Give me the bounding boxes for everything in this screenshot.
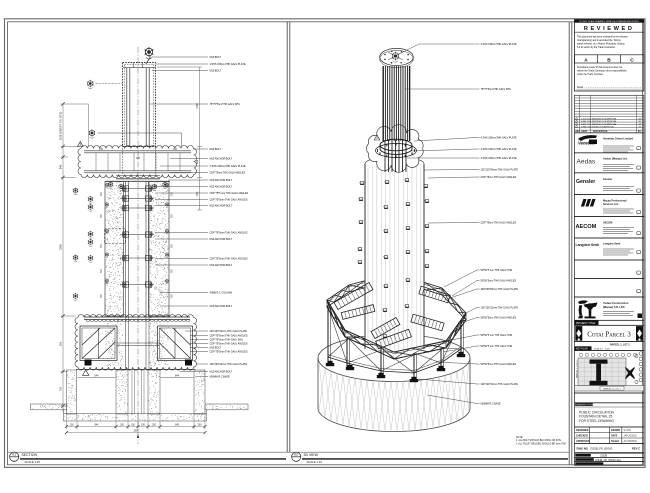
svg-text:Date :: Date : (577, 85, 585, 89)
svg-text:M10 ANCHOR BOLT: M10 ANCHOR BOLT (210, 204, 233, 207)
svg-text:4 SHS 150mmTHK GALV PLATE: 4 SHS 150mmTHK GALV PLATE (210, 63, 246, 66)
svg-text:4 SHS 150mmTHK GALV PLATE: 4 SHS 150mmTHK GALV PLATE (210, 165, 246, 168)
svg-text:PARCEL 1, LOT 1: PARCEL 1, LOT 1 (575, 360, 578, 378)
svg-text:Gensler: Gensler (603, 178, 612, 181)
svg-text:600MM R.C BASE: 600MM R.C BASE (481, 402, 502, 405)
svg-text:4 SHS 150mmTHK GALV PLATE: 4 SHS 150mmTHK GALV PLATE (481, 136, 517, 139)
svg-text:2. ALL FILLET WELDED SHOULD BE: 2. ALL FILLET WELDED SHOULD BE 3mm THK. (516, 442, 567, 445)
svg-text:DESIGNED: DESIGNED (576, 429, 589, 432)
svg-text:844: 844 (175, 374, 180, 377)
svg-text:3153B_PD_B5000: 3153B_PD_B5000 (590, 447, 613, 451)
svg-text:REISSUED FOR APPROVAL: REISSUED FOR APPROVAL (592, 118, 617, 121)
svg-text:CDF*75*5mm THK GALV ANGLES: CDF*75*5mm THK GALV ANGLES (210, 257, 248, 260)
svg-text:1196 (VERIFY ON SITE): 1196 (VERIFY ON SITE) (59, 112, 63, 141)
svg-text:REVIEWED: REVIEWED (584, 26, 635, 32)
svg-text:CDF*75*5mm THK GALV ANGLES: CDF*75*5mm THK GALV ANGLES (210, 198, 248, 201)
svg-text:50*50*5mm THK GALV ANGLES: 50*50*5mm THK GALV ANGLES (481, 316, 517, 319)
svg-text:PARCEL 1, LOT 2: PARCEL 1, LOT 2 (610, 344, 630, 347)
svg-text:9 MAR 2015: 9 MAR 2015 (581, 126, 592, 129)
svg-text:5.4 for action by the Trade Co: 5.4 for action by the Trade Contractor. (577, 46, 616, 49)
svg-text:600MM R.C BASE: 600MM R.C BASE (210, 375, 231, 378)
svg-text:846: 846 (59, 164, 63, 169)
svg-text:Aedas (Macau) Ltd.: Aedas (Macau) Ltd. (603, 156, 628, 160)
svg-text:CDF*75*5mm THK GALV ANGLES: CDF*75*5mm THK GALV ANGLES (210, 350, 248, 353)
svg-text:8 MAY 2015: 8 MAY 2015 (581, 120, 591, 123)
svg-text:SCALE: SCALE (611, 440, 620, 443)
svg-text:4 B88 R.C COLUMN: 4 B88 R.C COLUMN (210, 291, 233, 294)
svg-text:120*120*50mm THK GALV PLATE: 120*120*50mm THK GALV PLATE (481, 168, 519, 171)
svg-text:(Macau) CO. LTD.: (Macau) CO. LTD. (603, 305, 625, 309)
svg-text:CDF*75*5mm THK GALV SHS: CDF*75*5mm THK GALV SHS (210, 338, 244, 341)
svg-text:3D VIEW: 3D VIEW (304, 453, 319, 457)
svg-text:4 SHS 150mmTHK GALV PLATE: 4 SHS 150mmTHK GALV PLATE (481, 148, 517, 151)
svg-text:APPROVED: APPROVED (576, 440, 590, 443)
svg-text:750: 750 (59, 386, 63, 391)
svg-text:M10 ANCHOR BOLT: M10 ANCHOR BOLT (210, 370, 233, 373)
svg-text:REV C: REV C (632, 447, 640, 451)
svg-text:4 SHS 150mmTHK GALV PLATE: 4 SHS 150mmTHK GALV PLATE (481, 43, 517, 46)
svg-text:CDF*75*5mm THK GALV ANGLES: CDF*75*5mm THK GALV ANGLES (210, 231, 248, 234)
svg-text:CDF*75mm THK GALV ANGLES: CDF*75mm THK GALV ANGLES (210, 171, 246, 174)
svg-text:REISSUED FOR APPROVAL: REISSUED FOR APPROVAL (592, 120, 617, 123)
svg-text:M10 ANCHOR BOLT: M10 ANCHOR BOLT (210, 185, 233, 188)
svg-text:14FUG2015: 14FUG2015 (624, 434, 638, 437)
svg-text:100*100*10mm THK GALV PLATE: 100*100*10mm THK GALV PLATE (481, 383, 519, 386)
svg-text:CDF*75*5mm THK GALV ANGLES: CDF*75*5mm THK GALV ANGLES (210, 342, 248, 345)
svg-text:DRAWING TITLE:: DRAWING TITLE: (576, 404, 594, 407)
svg-text:N50: N50 (195, 191, 199, 196)
svg-text:Cotai Parcel 3: Cotai Parcel 3 (587, 331, 631, 339)
svg-text:3: 3 (79, 143, 81, 147)
svg-text:Langdon·Seah: Langdon·Seah (576, 243, 600, 247)
svg-text:460*200*50mm THK GALV PLATE: 460*200*50mm THK GALV PLATE (481, 288, 519, 291)
svg-text:under the Trade Contract.: under the Trade Contract. (577, 73, 604, 76)
svg-text:100*100*10mm THK GALV PLATE: 100*100*10mm THK GALV PLATE (210, 330, 248, 333)
svg-text:CHECKED: CHECKED (576, 434, 588, 437)
svg-text:Langdon Seah: Langdon Seah (603, 243, 621, 246)
svg-text:AECOM: AECOM (603, 222, 612, 225)
svg-text:M10 ANCHOR BOLT: M10 ANCHOR BOLT (210, 179, 233, 182)
svg-text:S.LHO: S.LHO (624, 429, 631, 432)
svg-text:75*75*5mmTHK GALV SHS: 75*75*5mmTHK GALV SHS (481, 88, 512, 91)
svg-text:75*75*5mmTHK GALV SHS: 75*75*5mmTHK GALV SHS (210, 103, 241, 106)
svg-text:AS SHOWN: AS SHOWN (624, 440, 637, 443)
svg-text:50*50*5mm THK GALV ANGLES: 50*50*5mm THK GALV ANGLES (481, 363, 517, 366)
svg-text:50*50*5mm THK GALV ANGLES: 50*50*5mm THK GALV ANGLES (481, 279, 517, 282)
svg-text:DWG NO: DWG NO (577, 447, 588, 451)
svg-text:PROJECT TITLE:: PROJECT TITLE: (576, 322, 596, 325)
svg-text:M10 BOLT: M10 BOLT (210, 69, 222, 72)
svg-text:50*50*5 mm THK GALV SHS: 50*50*5 mm THK GALV SHS (481, 345, 513, 348)
svg-text:2 JUN 2015: 2 JUN 2015 (581, 119, 591, 121)
svg-text:This document has been reviewe: This document has been reviewed by the r… (577, 36, 628, 39)
svg-text:status referred to in Project: status referred to in Project Procedure … (577, 43, 625, 46)
svg-text:1196: 1196 (195, 103, 199, 109)
svg-text:M10 BOLT: M10 BOLT (210, 346, 222, 349)
svg-text:2590: 2590 (133, 430, 139, 432)
svg-text:Consultant review of this docu: Consultant review of this document does … (577, 66, 623, 69)
svg-text:Consultants(s) and is accorded: Consultants(s) and is accorded the Wrong (577, 39, 621, 42)
svg-text:6 APR 2015: 6 APR 2015 (581, 123, 591, 126)
svg-text:02: 02 (294, 453, 298, 457)
svg-text:846: 846 (195, 159, 199, 164)
svg-text:A: A (584, 57, 588, 63)
svg-text:500: 500 (59, 341, 63, 346)
svg-text:100*100*10mm THK GALV PLATE: 100*100*10mm THK GALV PLATE (481, 306, 519, 309)
svg-text:SCALE 1 : 7500: SCALE 1 : 7500 (594, 348, 610, 351)
svg-text:50*50*5 mm THK GALV SHS: 50*50*5 mm THK GALV SHS (481, 334, 513, 337)
svg-text:DO NOT SCALE DRAWING. VERIFY A: DO NOT SCALE DRAWING. VERIFY ALL DIMENSI… (580, 20, 640, 23)
svg-text:M10 BOLT: M10 BOLT (210, 56, 222, 59)
svg-text:relieve the Trade Contractor o: relieve the Trade Contractor of its resp… (577, 69, 628, 72)
svg-text:Gensler: Gensler (576, 179, 595, 185)
svg-text:NOTE:: NOTE: (516, 437, 523, 439)
svg-text:M10 ANCHOR BOLT: M10 ANCHOR BOLT (210, 238, 233, 241)
svg-text:REISSUED FOR APPROVAL: REISSUED FOR APPROVAL (592, 123, 617, 126)
svg-text:PARCEL 3, LOT 1: PARCEL 3, LOT 1 (603, 387, 621, 390)
svg-text:CDF*75mm THK GALV ANGLES: CDF*75mm THK GALV ANGLES (481, 176, 517, 179)
svg-text:C: C (630, 57, 634, 63)
svg-text:M10 ANCHOR BOLT: M10 ANCHOR BOLT (210, 305, 233, 308)
svg-text:FOR STEEL DRAWING: FOR STEEL DRAWING (579, 419, 614, 423)
svg-text:100*100*10mm THK GALV PLATE: 100*100*10mm THK GALV PLATE (210, 363, 248, 366)
svg-text:Aedas: Aedas (577, 159, 596, 166)
svg-text:SECTION: SECTION (22, 453, 38, 457)
svg-text:2345: 2345 (59, 244, 63, 250)
svg-text:M10 BOLT: M10 BOLT (210, 148, 222, 151)
svg-text:M10 ANCHOR BOLT: M10 ANCHOR BOLT (210, 264, 233, 267)
svg-text:SCALE 1:10: SCALE 1:10 (307, 460, 323, 464)
svg-text:844: 844 (95, 374, 100, 377)
svg-text:CDF*75mm THK GALV ANGLES: CDF*75mm THK GALV ANGLES (481, 221, 517, 224)
svg-text:Yudea Construction: Yudea Construction (603, 301, 629, 305)
svg-text:CDF*75*5 mm THK GALV ANGLES: CDF*75*5 mm THK GALV ANGLES (210, 192, 249, 195)
svg-text:4 SHS 150mmTHK GALV PLATE: 4 SHS 150mmTHK GALV PLATE (481, 157, 517, 160)
svg-text:01: 01 (12, 453, 16, 457)
svg-text:ISSUED FOR APPROVAL: ISSUED FOR APPROVAL (592, 126, 614, 129)
svg-text:AECOM: AECOM (576, 224, 597, 230)
svg-text:CDF*75*5mm THK GALV ANGLES: CDF*75*5mm THK GALV ANGLES (210, 334, 248, 337)
svg-text:B: B (607, 57, 611, 63)
svg-text:DATE: DATE (611, 434, 618, 437)
svg-text:M10 ANCHOR BOLT: M10 ANCHOR BOLT (210, 157, 233, 160)
svg-text:DRAWN: DRAWN (611, 429, 620, 432)
svg-text:50*50*5 mm THK GALV SHS: 50*50*5 mm THK GALV SHS (481, 269, 513, 272)
svg-text:SCALE 1:25: SCALE 1:25 (25, 460, 41, 464)
svg-text:1. ALL BOLT SHOULD BE FIXING O: 1. ALL BOLT SHOULD BE FIXING ON SITE. (516, 439, 562, 442)
svg-text:Services Ltd.: Services Ltd. (603, 203, 619, 206)
svg-text:-: - (14, 460, 15, 463)
svg-text:Venetian Orient Limited: Venetian Orient Limited (603, 137, 633, 141)
